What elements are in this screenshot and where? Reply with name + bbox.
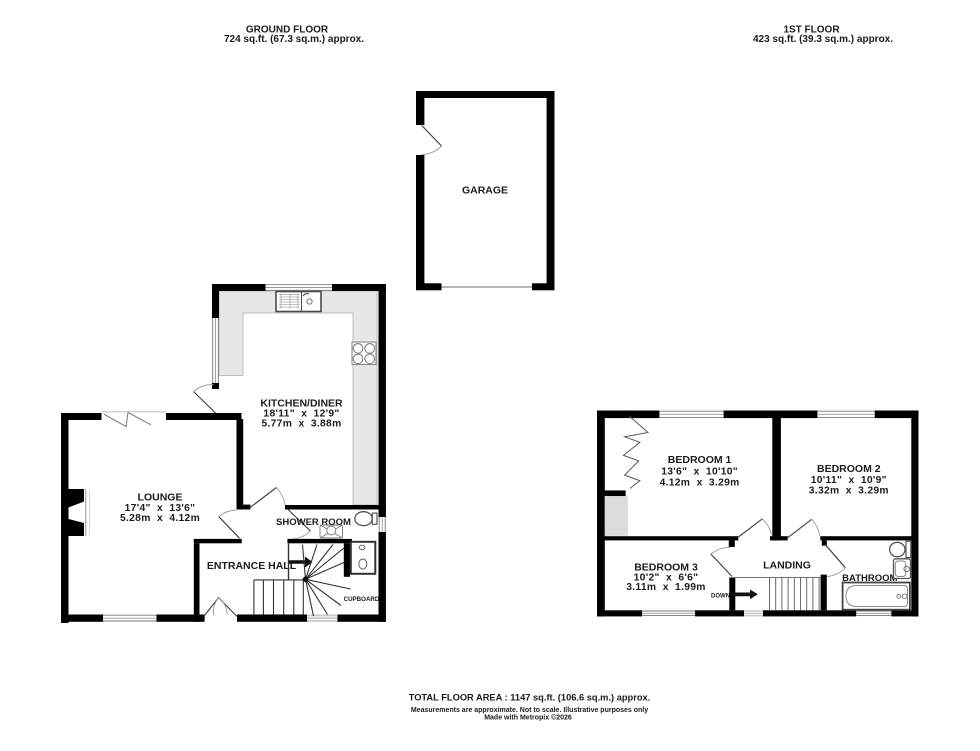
svg-text:BEDROOM 1: BEDROOM 1 <box>668 454 732 466</box>
svg-text:GARAGE: GARAGE <box>462 185 508 197</box>
svg-text:724 sq.ft. (67.3 sq.m.) approx: 724 sq.ft. (67.3 sq.m.) approx. <box>224 34 364 45</box>
svg-text:4.12m x 3.29m: 4.12m x 3.29m <box>660 478 740 489</box>
svg-text:DOWN: DOWN <box>711 593 730 599</box>
svg-text:CUPBOARD: CUPBOARD <box>344 596 380 603</box>
svg-text:423 sq.ft. (39.3 sq.m.) approx: 423 sq.ft. (39.3 sq.m.) approx. <box>753 34 893 45</box>
svg-text:ENTRANCE HALL: ENTRANCE HALL <box>207 560 297 572</box>
svg-text:3.32m x 3.29m: 3.32m x 3.29m <box>809 486 889 497</box>
svg-text:Measurements are approximate.: Measurements are approximate. Not to sca… <box>411 707 648 714</box>
svg-text:LANDING: LANDING <box>763 559 811 571</box>
svg-text:Made with Metropix ©2026: Made with Metropix ©2026 <box>484 714 572 722</box>
svg-text:TOTAL FLOOR AREA : 1147 sq.ft.: TOTAL FLOOR AREA : 1147 sq.ft. (106.6 sq… <box>409 693 651 703</box>
svg-text:10'11" x 10'9": 10'11" x 10'9" <box>811 475 887 486</box>
svg-text:LOUNGE: LOUNGE <box>138 492 183 504</box>
svg-text:5.28m x 4.12m: 5.28m x 4.12m <box>120 513 200 524</box>
svg-text:5.77m x 3.88m: 5.77m x 3.88m <box>261 419 341 430</box>
svg-text:BEDROOM 2: BEDROOM 2 <box>817 463 881 475</box>
svg-text:13'6" x 10'10": 13'6" x 10'10" <box>661 467 738 478</box>
svg-text:3.11m x 1.99m: 3.11m x 1.99m <box>626 582 706 593</box>
